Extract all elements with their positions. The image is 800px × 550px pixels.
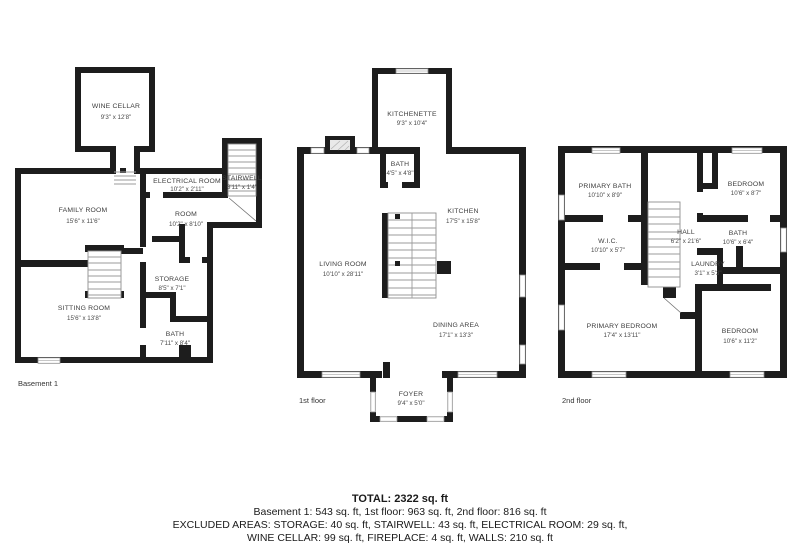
room-label-wic: W.I.C. xyxy=(598,238,618,245)
basement-windows xyxy=(38,358,60,364)
fireplace xyxy=(325,136,355,154)
caption-second-floor: 2nd floor xyxy=(562,396,592,405)
room-dims-basement-bath: 7'11" x 8'4" xyxy=(160,340,190,347)
room-dims-bedroom-bottom: 10'6" x 11'2" xyxy=(723,338,756,345)
room-label-hall: HALL xyxy=(677,229,695,236)
room-label-primary-bedroom: PRIMARY BEDROOM xyxy=(587,323,658,330)
room-label-bedroom-top: BEDROOM xyxy=(728,181,765,188)
excluded-areas-text-2: WINE CELLAR: 99 sq. ft, FIREPLACE: 4 sq.… xyxy=(0,532,800,545)
room-dims-primary-bedroom: 17'4" x 13'11" xyxy=(604,332,641,339)
room-dims-storage: 8'5" x 7'1" xyxy=(158,285,185,292)
second-floor-plan: PRIMARY BATH 10'10" x 8'9" BEDROOM 10'6"… xyxy=(558,146,787,405)
room-label-sitting-room: SITTING ROOM xyxy=(58,305,110,312)
room-label-stairwell: STAIRWELL xyxy=(222,175,262,182)
room-label-primary-bath: PRIMARY BATH xyxy=(579,183,632,190)
caption-basement: Basement 1 xyxy=(18,379,58,388)
room-label-kitchen: KITCHEN xyxy=(447,208,478,215)
room-dims-wic: 10'10" x 5'7" xyxy=(591,247,625,254)
room-dims-sitting-room: 15'6" x 13'8" xyxy=(67,315,101,322)
basement-walls xyxy=(15,67,262,363)
room-dims-room: 10'2" x 8'10" xyxy=(169,221,203,228)
room-dims-first-bath: 4'5" x 4'8" xyxy=(386,170,413,177)
first-floor-stairs xyxy=(388,213,436,298)
room-label-dining-area: DINING AREA xyxy=(433,322,479,329)
room-label-laundry: LAUNDRY xyxy=(691,261,725,268)
room-dims-primary-bath: 10'10" x 8'9" xyxy=(588,192,622,199)
room-dims-dining-area: 17'1" x 13'3" xyxy=(439,332,473,339)
room-dims-second-bath: 10'6" x 6'4" xyxy=(723,239,754,246)
area-summary: TOTAL: 2322 sq. ft Basement 1: 543 sq. f… xyxy=(0,492,800,546)
room-dims-living-room: 10'10" x 28'11" xyxy=(323,271,363,278)
room-label-basement-bath: BATH xyxy=(166,331,184,338)
room-dims-foyer: 9'4" x 5'0" xyxy=(397,400,424,407)
room-label-family-room: FAMILY ROOM xyxy=(59,207,108,214)
room-dims-bedroom-top: 10'6" x 8'7" xyxy=(731,190,762,197)
excluded-areas-text-1: EXCLUDED AREAS: STORAGE: 40 sq. ft, STAI… xyxy=(0,519,800,532)
room-label-second-bath: BATH xyxy=(729,230,747,237)
first-floor-plan: KITCHENETTE 9'3" x 10'4" BATH 4'5" x 4'8… xyxy=(297,68,526,422)
room-dims-hall: 6'2" x 21'6" xyxy=(671,238,702,245)
basement-floor-plan: WINE CELLAR 9'3" x 12'8" FAMILY ROOM 15'… xyxy=(15,67,262,388)
room-label-wine-cellar: WINE CELLAR xyxy=(92,103,140,110)
room-label-foyer: FOYER xyxy=(399,391,423,398)
room-dims-laundry: 3'1" x 5'3" xyxy=(694,270,721,277)
total-area-text: TOTAL: 2322 sq. ft xyxy=(0,492,800,506)
floorplan-page: WINE CELLAR 9'3" x 12'8" FAMILY ROOM 15'… xyxy=(0,0,800,550)
room-dims-electrical-room: 10'2" x 2'11" xyxy=(170,186,203,193)
floor-areas-text: Basement 1: 543 sq. ft, 1st floor: 963 s… xyxy=(0,506,800,519)
room-label-living-room: LIVING ROOM xyxy=(319,261,367,268)
floor-plan-canvas: WINE CELLAR 9'3" x 12'8" FAMILY ROOM 15'… xyxy=(0,0,800,470)
room-dims-wine-cellar: 9'3" x 12'8" xyxy=(101,114,132,121)
room-dims-family-room: 15'6" x 11'6" xyxy=(66,218,99,225)
room-label-room: ROOM xyxy=(175,211,197,218)
caption-first-floor: 1st floor xyxy=(299,396,326,405)
room-label-kitchenette: KITCHENETTE xyxy=(387,111,437,118)
room-label-electrical-room: ELECTRICAL ROOM xyxy=(153,178,221,185)
room-dims-stairwell: 3'11" x 1'4" xyxy=(227,184,257,191)
room-dims-kitchenette: 9'3" x 10'4" xyxy=(397,120,428,127)
room-label-storage: STORAGE xyxy=(155,276,190,283)
room-label-first-bath: BATH xyxy=(391,161,409,168)
room-label-bedroom-bottom: BEDROOM xyxy=(722,328,759,335)
room-dims-kitchen: 17'5" x 15'8" xyxy=(446,218,480,225)
